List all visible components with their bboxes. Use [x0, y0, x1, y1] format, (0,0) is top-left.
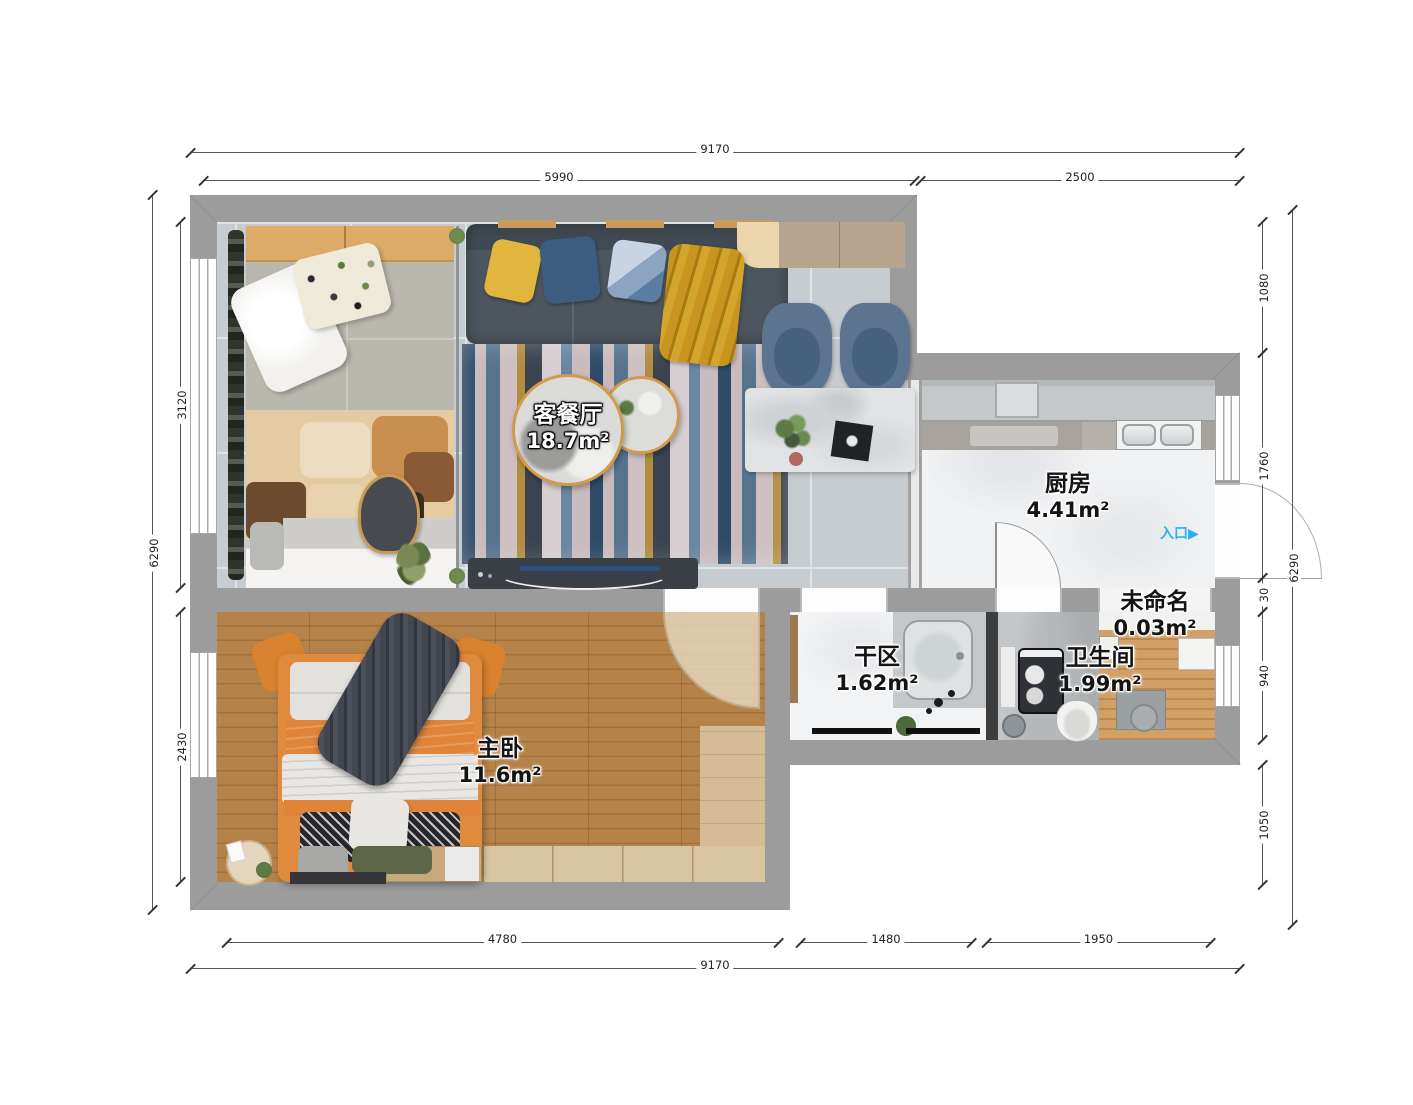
dry-bath-partition	[986, 612, 998, 740]
dim-bottom-right: 1950	[986, 942, 1211, 943]
divider-plant-top	[449, 228, 465, 244]
window-living-left	[190, 258, 217, 534]
bed-frame-foot	[290, 872, 386, 884]
dry-dot-2	[948, 690, 955, 697]
cooktop-hood	[995, 382, 1039, 418]
cutting-board	[970, 426, 1058, 446]
dining-chair-2-seat	[852, 328, 898, 386]
bathroom-area: 1.99m²	[1059, 672, 1142, 698]
partition-divider	[456, 226, 459, 588]
kitchen-area: 4.41m²	[1027, 498, 1110, 524]
dining-chair-1-seat	[774, 328, 820, 386]
kitchen-name: 厨房	[1045, 470, 1091, 498]
entrance-text: 入口	[1160, 526, 1188, 542]
room-label-kitchen: 厨房 4.41m²	[1027, 470, 1110, 524]
toilet	[1056, 700, 1098, 742]
rug-plant	[256, 862, 272, 878]
desk-plant	[396, 540, 432, 586]
master-bedroom-name: 主卧	[477, 735, 523, 763]
bed-throw-green	[352, 846, 432, 874]
dim-right-s3: 30	[1262, 578, 1263, 612]
tv-soundbar-arc	[496, 556, 672, 590]
sofa-trim-2	[606, 220, 664, 228]
dry-threshold-2	[906, 728, 980, 734]
tv-knob-1	[478, 572, 483, 577]
bedroom-door-opening	[663, 588, 760, 612]
room-label-living: 客餐厅 18.7m²	[527, 401, 610, 455]
dry-door-jamb	[790, 615, 798, 703]
table-tray	[831, 421, 874, 462]
living-name: 客餐厅	[534, 401, 603, 429]
dry-area-name: 干区	[854, 643, 900, 671]
unnamed-area: 0.03m²	[1114, 616, 1197, 642]
dry-area-opening	[800, 588, 888, 612]
entrance-label: 入口▶	[1160, 523, 1199, 543]
kitchen-door-opening	[995, 588, 1062, 612]
dim-right-s1: 1080	[1262, 222, 1263, 353]
shower-stool	[1130, 704, 1158, 732]
dim-top-total: 9170	[190, 152, 1240, 153]
window-bath-right	[1215, 645, 1240, 707]
living-rug	[462, 344, 788, 564]
room-label-master-bedroom: 主卧 11.6m²	[459, 735, 542, 789]
window-bedroom-left	[190, 652, 217, 778]
shower-bench-white	[1178, 638, 1215, 670]
dry-threshold-1	[812, 728, 892, 734]
master-bedroom-area: 11.6m²	[459, 763, 542, 789]
sofa-pillow-blue	[539, 235, 601, 305]
sideboard	[779, 222, 905, 268]
dim-top-right: 2500	[920, 180, 1240, 181]
entrance-arrow-icon: ▶	[1188, 526, 1199, 542]
sofa-throw-mustard	[658, 242, 746, 367]
sofa-trim-1	[498, 220, 556, 228]
wall-top	[190, 195, 917, 222]
dim-right-s5: 1050	[1262, 765, 1263, 885]
unnamed-name: 未命名	[1121, 588, 1190, 616]
dim-left-bottom: 2430	[180, 612, 181, 882]
dim-bottom-left: 4780	[226, 942, 779, 943]
tv-screen	[520, 566, 660, 571]
room-label-dry-area: 干区 1.62m²	[836, 643, 919, 697]
dry-dot-3	[926, 708, 932, 714]
window-kitchen-right	[1215, 395, 1240, 481]
room-label-unnamed: 未命名 0.03m²	[1114, 588, 1197, 642]
dim-right-total: 6290	[1292, 210, 1293, 925]
dim-right-s4: 940	[1262, 612, 1263, 740]
wall-bedroom-right	[765, 612, 790, 910]
curtain	[228, 230, 244, 580]
tv-knob-2	[488, 574, 492, 578]
bedroom-side-panel	[700, 726, 765, 846]
dim-right-s2: 1760	[1262, 353, 1263, 578]
sink-basin-2	[1160, 424, 1194, 446]
dry-dot-1	[934, 698, 943, 707]
dim-bottom-total: 9170	[190, 968, 1240, 969]
bathroom-name: 卫生间	[1066, 644, 1135, 672]
entrance-door-arc	[1240, 483, 1322, 579]
sink-basin-1	[1122, 424, 1156, 446]
washing-machine	[1018, 648, 1064, 714]
dim-top-left: 5990	[203, 180, 915, 181]
entrance-door-opening	[1215, 483, 1240, 579]
dim-left-total: 6290	[152, 195, 153, 910]
basin-faucet	[956, 652, 964, 660]
divider-plant-bottom	[449, 568, 465, 584]
wall-kitchen-top	[917, 353, 1240, 380]
tatami-rug-patch-1	[300, 422, 370, 478]
table-pot	[789, 452, 803, 466]
dim-left-top: 3120	[180, 222, 181, 588]
kitchen-upper-cabinets	[922, 380, 1215, 422]
desk-cushion	[250, 522, 284, 570]
dry-area-area: 1.62m²	[836, 671, 919, 697]
sofa-pillow-lightblue	[606, 239, 668, 304]
dim-bottom-middle: 1480	[800, 942, 972, 943]
bath-stool	[1002, 714, 1026, 738]
living-area: 18.7m²	[527, 429, 610, 455]
bath-cabinet	[1000, 646, 1016, 708]
floor-plan: 9170 5990 2500 4780 1480 1950 9170 6290 …	[0, 0, 1413, 1105]
wardrobe	[484, 846, 765, 882]
wall-bath-bottom	[790, 740, 1240, 765]
wall-bedroom-bottom	[190, 882, 790, 910]
room-label-bathroom: 卫生间 1.99m²	[1059, 644, 1142, 698]
